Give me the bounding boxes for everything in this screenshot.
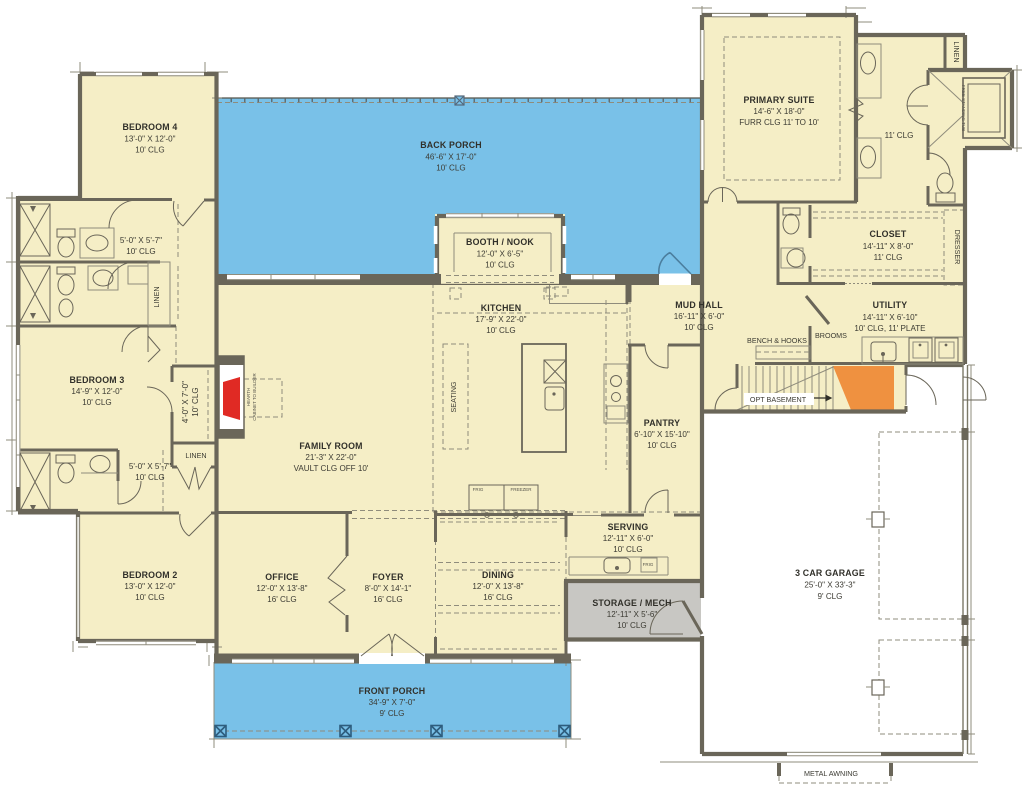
svg-text:METAL AWNING: METAL AWNING (804, 769, 858, 778)
svg-text:16'-11" X 6'-0": 16'-11" X 6'-0" (674, 312, 725, 321)
svg-text:46'-6" X 17'-0": 46'-6" X 17'-0" (425, 153, 476, 162)
svg-text:BACK PORCH: BACK PORCH (420, 140, 482, 150)
svg-text:9' CLG: 9' CLG (818, 592, 843, 601)
svg-text:LINEN: LINEN (152, 286, 161, 307)
svg-text:10' CLG: 10' CLG (126, 247, 155, 256)
svg-text:13'-0" X 12'-0": 13'-0" X 12'-0" (124, 135, 175, 144)
svg-text:8'-0" X 14'-1": 8'-0" X 14'-1" (365, 584, 412, 593)
svg-text:LINEN: LINEN (952, 41, 961, 62)
svg-text:16' CLG: 16' CLG (267, 595, 296, 604)
svg-text:16' CLG: 16' CLG (373, 595, 402, 604)
svg-text:BEDROOM 3: BEDROOM 3 (69, 375, 124, 385)
svg-text:UTILITY: UTILITY (873, 300, 908, 310)
svg-text:13'-0" X 12'-0": 13'-0" X 12'-0" (124, 582, 175, 591)
svg-text:14'-6" X 18'-0": 14'-6" X 18'-0" (753, 107, 804, 116)
svg-text:SEATING: SEATING (449, 381, 458, 412)
svg-text:6'-10" X 15'-10": 6'-10" X 15'-10" (634, 430, 690, 439)
svg-text:BEDROOM 2: BEDROOM 2 (122, 570, 177, 580)
svg-text:VAULT CLG OFF 10': VAULT CLG OFF 10' (294, 464, 369, 473)
svg-text:10' CLG: 10' CLG (135, 146, 164, 155)
svg-text:SERVING: SERVING (608, 522, 649, 532)
svg-text:14'-9" X 12'-0": 14'-9" X 12'-0" (71, 387, 122, 396)
svg-text:10' CLG: 10' CLG (486, 326, 515, 335)
svg-text:DINING: DINING (482, 570, 514, 580)
svg-text:10' CLG: 10' CLG (436, 164, 465, 173)
svg-text:14'-11" X 6'-10": 14'-11" X 6'-10" (862, 313, 917, 322)
svg-text:FREE STANDING TUB: FREE STANDING TUB (961, 85, 966, 131)
svg-text:3 CAR GARAGE: 3 CAR GARAGE (795, 568, 865, 578)
svg-text:11' CLG: 11' CLG (885, 131, 914, 140)
svg-text:11' CLG: 11' CLG (874, 253, 903, 262)
svg-text:HEARTH: HEARTH (246, 388, 251, 406)
svg-text:FRIG: FRIG (643, 562, 654, 567)
svg-text:12'-11" X 5'-6": 12'-11" X 5'-6" (607, 610, 658, 619)
svg-text:10' CLG: 10' CLG (135, 593, 164, 602)
svg-text:LINEN: LINEN (185, 451, 206, 460)
svg-text:10' CLG: 10' CLG (647, 441, 676, 450)
svg-text:DRESSER: DRESSER (953, 230, 962, 265)
svg-text:MUD HALL: MUD HALL (675, 300, 723, 310)
svg-text:34'-9" X 7'-0": 34'-9" X 7'-0" (369, 698, 416, 707)
svg-text:OFFICE: OFFICE (265, 572, 298, 582)
svg-text:12'-11" X 6'-0": 12'-11" X 6'-0" (603, 534, 654, 543)
svg-text:10' CLG, 11' PLATE: 10' CLG, 11' PLATE (854, 324, 926, 333)
svg-text:PANTRY: PANTRY (644, 418, 680, 428)
svg-text:10' CLG: 10' CLG (191, 387, 200, 416)
svg-text:FAMILY ROOM: FAMILY ROOM (299, 441, 362, 451)
svg-text:KITCHEN: KITCHEN (481, 303, 522, 313)
svg-text:CABINET TO BUILDER: CABINET TO BUILDER (252, 372, 257, 420)
svg-text:4'-0" X 7'-0": 4'-0" X 7'-0" (181, 381, 190, 423)
svg-text:BOOTH / NOOK: BOOTH / NOOK (466, 237, 534, 247)
svg-text:5'-0" X 5'-7": 5'-0" X 5'-7" (120, 236, 162, 245)
svg-text:12'-0" X 6'-5": 12'-0" X 6'-5" (477, 250, 524, 259)
svg-text:FURR CLG 11' TO 10': FURR CLG 11' TO 10' (739, 118, 819, 127)
svg-text:10' CLG: 10' CLG (485, 261, 514, 270)
svg-text:BROOMS: BROOMS (815, 331, 847, 340)
svg-text:STORAGE / MECH: STORAGE / MECH (592, 598, 671, 608)
svg-text:25'-0" X 33'-3": 25'-0" X 33'-3" (804, 581, 855, 590)
svg-text:17'-9" X 22'-0": 17'-9" X 22'-0" (475, 315, 526, 324)
svg-text:FREEZER: FREEZER (510, 487, 532, 492)
svg-text:10' CLG: 10' CLG (684, 323, 713, 332)
svg-text:5'-0" X 5'-7": 5'-0" X 5'-7" (129, 462, 171, 471)
svg-text:BEDROOM 4: BEDROOM 4 (122, 122, 177, 132)
svg-text:10' CLG: 10' CLG (617, 621, 646, 630)
svg-text:9' CLG: 9' CLG (380, 709, 405, 718)
svg-text:BENCH & HOOKS: BENCH & HOOKS (747, 336, 807, 345)
svg-text:12'-0" X 13'-8": 12'-0" X 13'-8" (256, 584, 307, 593)
svg-text:FOYER: FOYER (372, 572, 404, 582)
svg-text:10' CLG: 10' CLG (135, 473, 164, 482)
svg-text:CLOSET: CLOSET (870, 229, 907, 239)
svg-text:14'-11" X 8'-0": 14'-11" X 8'-0" (863, 242, 914, 251)
svg-text:21'-3" X 22'-0": 21'-3" X 22'-0" (305, 453, 356, 462)
svg-text:PRIMARY SUITE: PRIMARY SUITE (743, 95, 814, 105)
svg-text:16' CLG: 16' CLG (483, 593, 512, 602)
svg-text:12'-0" X 13'-8": 12'-0" X 13'-8" (472, 582, 523, 591)
svg-text:10' CLG: 10' CLG (613, 545, 642, 554)
svg-text:FRIG: FRIG (473, 487, 484, 492)
svg-text:10' CLG: 10' CLG (82, 398, 111, 407)
svg-text:OPT BASEMENT: OPT BASEMENT (750, 395, 807, 404)
svg-text:FRONT PORCH: FRONT PORCH (359, 686, 426, 696)
